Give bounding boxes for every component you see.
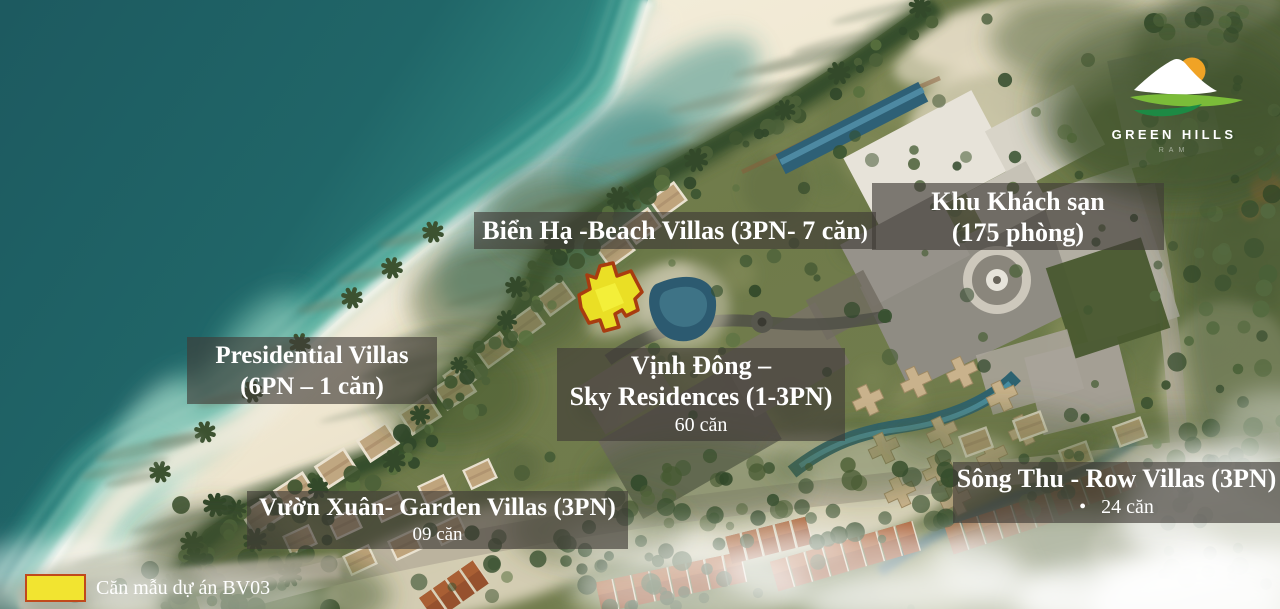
svg-text:RAM: RAM (1159, 147, 1190, 154)
svg-text:GREEN HILLS: GREEN HILLS (1112, 127, 1237, 142)
